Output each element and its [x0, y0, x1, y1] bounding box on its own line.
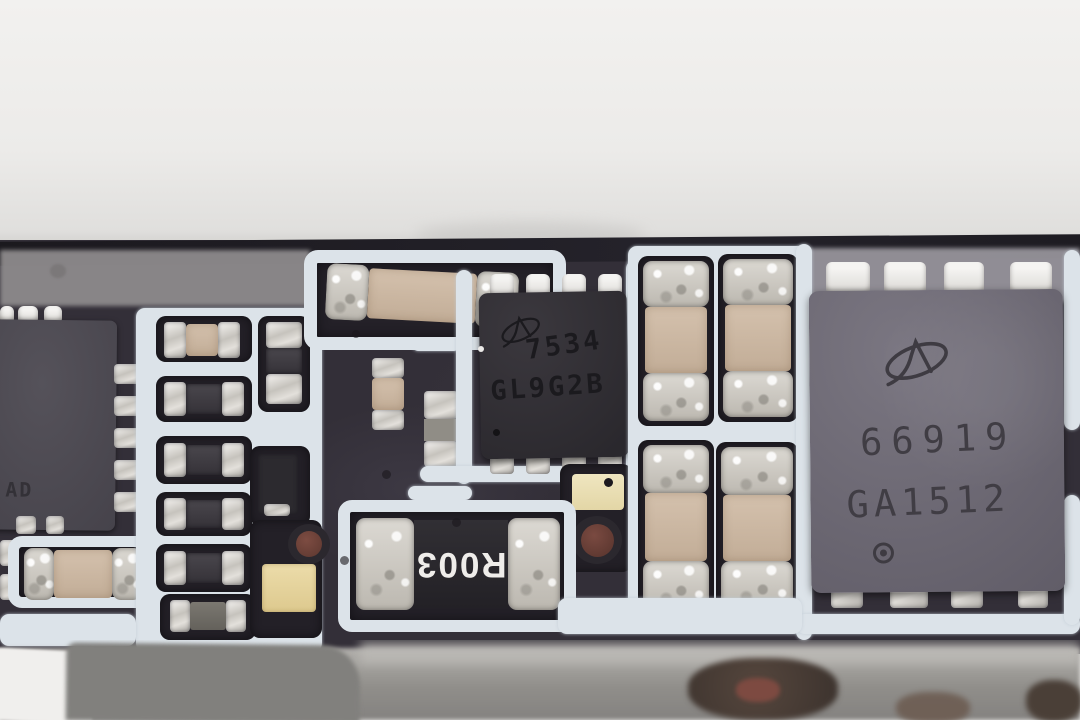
mlcc-capacitor-body [645, 493, 707, 561]
via [340, 556, 349, 565]
gold-pad [262, 564, 316, 612]
resistor-terminal [170, 600, 190, 632]
shunt-body: R003 [414, 520, 508, 608]
capacitor-terminal [643, 445, 709, 493]
resistor-terminal [226, 600, 246, 632]
pad-hole [604, 478, 613, 487]
ao-logo-icon [873, 332, 956, 391]
pin1-dot [493, 429, 500, 436]
foreground-blotch [896, 692, 970, 720]
mosfet-pin [826, 262, 870, 294]
resistor-terminal [222, 498, 244, 530]
glue-trace [1064, 250, 1080, 430]
test-point-via [296, 531, 322, 557]
capacitor-terminal [723, 371, 793, 417]
resistor-body [186, 445, 222, 475]
foreground-blotch [1026, 680, 1080, 720]
capacitor-terminal [164, 322, 186, 358]
resistor-terminal [222, 551, 244, 585]
foreground-highlight [360, 642, 1080, 664]
mlcc-capacitor-body [725, 305, 791, 371]
mlcc-capacitor-body [723, 495, 791, 561]
qfn-bottom-pad [46, 516, 64, 534]
resistor-terminal [266, 322, 302, 348]
capacitor-terminal [424, 391, 458, 419]
via-bump [50, 264, 66, 278]
mosfet-7534: 7534 GL9G2B [479, 291, 630, 460]
resistor-body [186, 553, 222, 583]
glue-trace [1064, 495, 1080, 625]
capacitor-terminal [721, 447, 793, 495]
left-ic-marking: AD [5, 477, 33, 501]
resistor-terminal [164, 382, 186, 416]
foreground-gray-bar [66, 642, 361, 720]
capacitor-terminal [218, 322, 240, 358]
capacitor-terminal [24, 548, 54, 600]
resistor-body [190, 602, 226, 630]
mosfet-7534-marking-line2: GL9G2B [489, 368, 606, 407]
capacitor-body [54, 550, 112, 598]
capacitor-body [424, 419, 458, 441]
capacitor-terminal [325, 263, 370, 321]
shunt-marking: R003 [415, 544, 507, 584]
pcb-macro-photo: AD [0, 0, 1080, 720]
resistor-terminal [222, 443, 244, 477]
qfn-bottom-pad [16, 516, 36, 534]
mosfet-66919-marking-line1: 66919 [859, 415, 1017, 465]
via [352, 330, 360, 338]
capacitor-body [372, 378, 404, 410]
glue-trace [408, 486, 472, 500]
capacitor-terminal [372, 358, 404, 378]
via [382, 470, 391, 479]
test-point-via [581, 524, 614, 557]
cream-pad [572, 474, 624, 510]
capacitor-terminal [643, 373, 709, 421]
resistor-terminal [164, 443, 186, 477]
shunt-terminal [356, 518, 414, 610]
pin1-marker-icon [873, 542, 894, 563]
shunt-terminal [508, 518, 560, 610]
mlcc-capacitor-body [645, 307, 707, 373]
capacitor-terminal [643, 261, 709, 307]
solder-speck [478, 346, 484, 352]
mosfet-66919: 66919 GA1512 [809, 289, 1066, 593]
resistor-terminal [164, 498, 186, 530]
resistor-terminal [222, 382, 244, 416]
glue-trace [796, 614, 1080, 634]
foreground-blotch [736, 678, 780, 702]
glue-trace [456, 270, 472, 484]
capacitor-terminal [372, 410, 404, 430]
resistor-body [186, 500, 222, 528]
board-bevel-left [0, 250, 310, 306]
capacitor-terminal [424, 441, 458, 467]
via [452, 518, 461, 527]
mosfet-66919-marking-line2: GA1512 [846, 477, 1011, 527]
diode-tab [264, 504, 290, 516]
capacitor-terminal [723, 259, 793, 305]
capacitor-body [186, 324, 218, 356]
resistor-terminal [164, 551, 186, 585]
foreground-blur-object [0, 640, 1080, 720]
resistor-body [186, 384, 222, 414]
glue-trace [558, 598, 802, 634]
resistor-body [266, 348, 302, 374]
left-ic-body: AD [0, 319, 117, 530]
resistor-terminal [266, 374, 302, 404]
backdrop [0, 0, 1080, 250]
